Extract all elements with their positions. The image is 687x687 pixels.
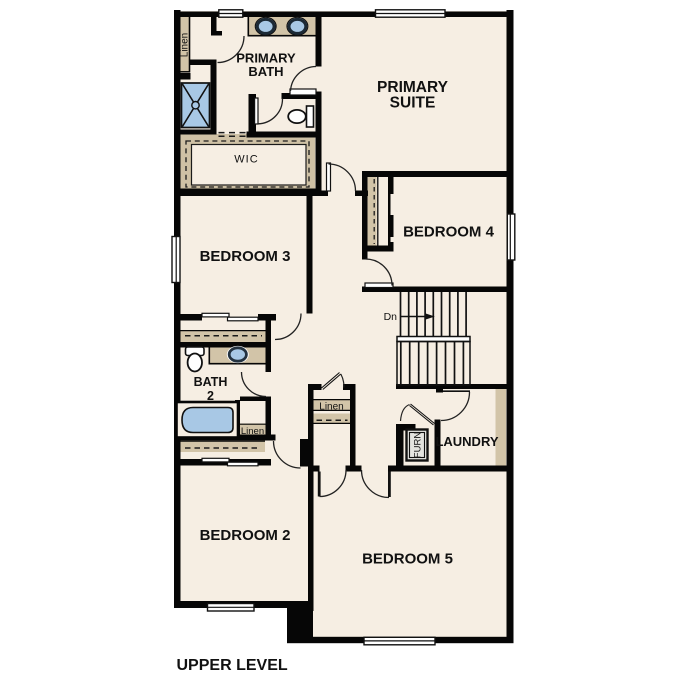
svg-text:SUITE: SUITE xyxy=(390,95,436,112)
svg-text:LAUNDRY: LAUNDRY xyxy=(435,434,498,449)
svg-text:Dn: Dn xyxy=(384,311,398,323)
svg-text:PRIMARY: PRIMARY xyxy=(377,79,449,96)
svg-text:BATH: BATH xyxy=(194,375,228,389)
svg-text:BEDROOM 5: BEDROOM 5 xyxy=(362,551,453,568)
svg-text:Linen: Linen xyxy=(241,426,264,437)
svg-text:FURN: FURN xyxy=(413,432,424,459)
svg-text:UPPER LEVEL: UPPER LEVEL xyxy=(177,657,288,674)
svg-text:Linen: Linen xyxy=(319,402,343,413)
svg-text:WIC: WIC xyxy=(234,154,258,166)
svg-text:BEDROOM 4: BEDROOM 4 xyxy=(403,224,495,241)
svg-text:Linen: Linen xyxy=(180,33,191,57)
svg-text:BEDROOM 2: BEDROOM 2 xyxy=(200,527,291,544)
svg-text:2: 2 xyxy=(207,389,214,403)
svg-text:BEDROOM 3: BEDROOM 3 xyxy=(200,248,291,265)
svg-text:BATH: BATH xyxy=(248,64,283,79)
